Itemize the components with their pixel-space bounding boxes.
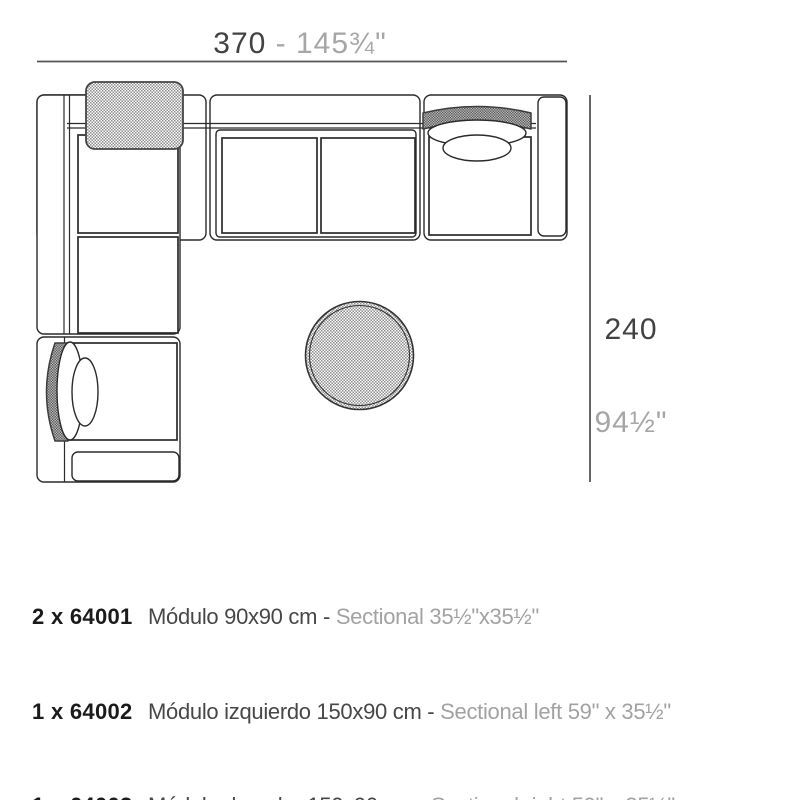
width-metric: 370	[213, 27, 266, 60]
embedded-rectangular-table	[86, 82, 183, 149]
part-separator: -	[412, 793, 431, 800]
seat-cushion	[222, 138, 317, 233]
seat-cushion	[321, 138, 415, 233]
armrest-right	[538, 97, 566, 236]
parts-list-item: 1 x 64003Módulo derecho 150x90 cm - Sect…	[32, 790, 792, 800]
pillow	[72, 358, 98, 426]
seat-cushion	[78, 237, 178, 333]
module-seat-frame	[216, 130, 416, 237]
round-table	[306, 302, 414, 410]
part-name-es: Módulo derecho 150x90 cm	[148, 793, 412, 800]
height-metric: 240	[572, 314, 690, 345]
parts-list: 2 x 64001Módulo 90x90 cm - Sectional 35½…	[32, 538, 792, 800]
part-name-en: Sectional 35½"x35½"	[336, 604, 539, 629]
part-name-en: Sectional left 59" x 35½"	[440, 699, 671, 724]
part-qty-code: 2 x 64001	[32, 601, 148, 633]
part-qty-code: 1 x 64003	[32, 790, 148, 800]
height-imperial: 94½"	[572, 407, 690, 438]
pillow	[443, 135, 511, 161]
width-dimension-label: 370 - 145¾"	[150, 28, 450, 60]
product-spec-sheet: 370 - 145¾" 240 94½" 2 x 64001Módulo 90x…	[0, 0, 800, 800]
part-separator: -	[421, 699, 440, 724]
parts-list-item: 1 x 64002Módulo izquierdo 150x90 cm - Se…	[32, 696, 792, 728]
width-imperial: 145¾"	[296, 27, 387, 60]
part-separator: -	[317, 604, 336, 629]
part-name-es: Módulo izquierdo 150x90 cm	[148, 699, 421, 724]
width-separator: -	[266, 27, 296, 60]
parts-list-item: 2 x 64001Módulo 90x90 cm - Sectional 35½…	[32, 601, 792, 633]
armrest-bottom	[72, 452, 179, 481]
part-name-es: Módulo 90x90 cm	[148, 604, 317, 629]
part-name-en: Sectional right 59" x 35½"	[431, 793, 675, 800]
height-dimension-label: 240 94½"	[572, 252, 690, 500]
part-qty-code: 1 x 64002	[32, 696, 148, 728]
